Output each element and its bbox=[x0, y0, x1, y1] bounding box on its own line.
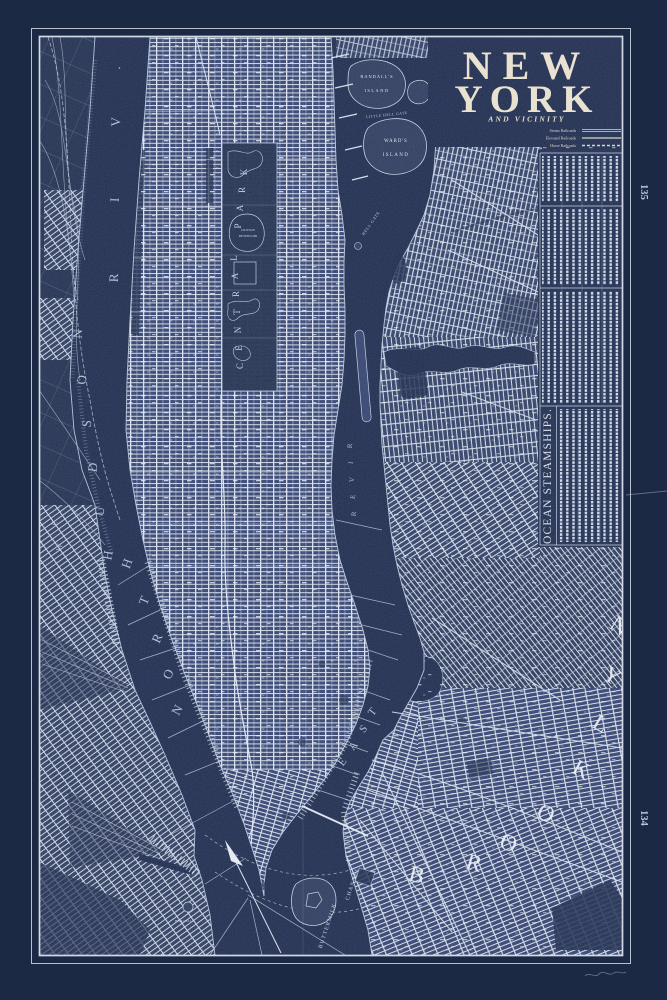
svg-text:134: 134 bbox=[638, 810, 649, 827]
svg-text:135: 135 bbox=[638, 184, 649, 200]
